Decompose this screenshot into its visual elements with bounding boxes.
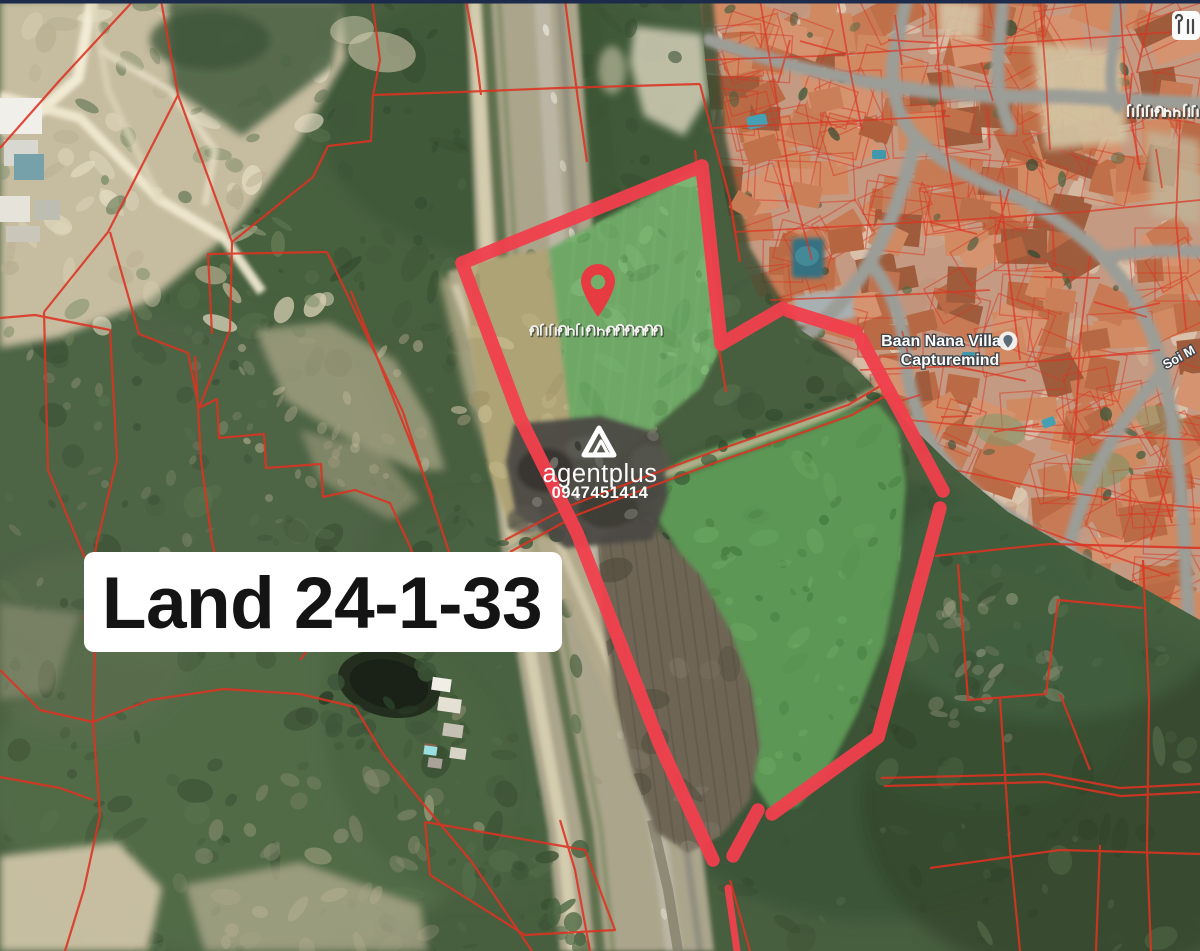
svg-text:0947451414: 0947451414 — [552, 484, 649, 502]
svg-text:Land 24-1-33: Land 24-1-33 — [102, 563, 542, 644]
svg-text:Capturemind: Capturemind — [901, 352, 1000, 369]
svg-text:Baan Nana Villa: Baan Nana Villa — [881, 333, 1001, 350]
